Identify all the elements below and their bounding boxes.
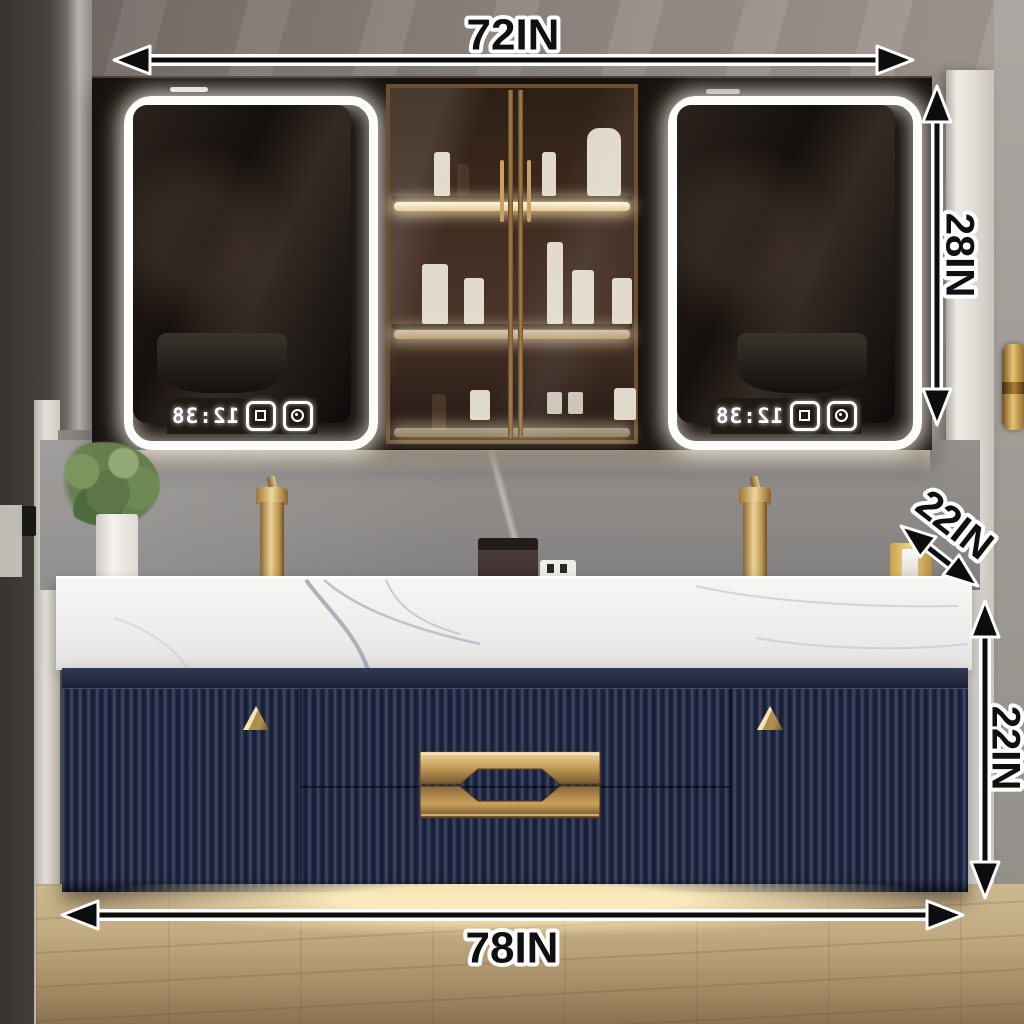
left-mirror-control-panel: 12:38	[167, 398, 317, 434]
under-vanity-glow	[100, 884, 924, 936]
clock-display: 12:38	[715, 404, 783, 428]
defog-icon	[255, 410, 266, 421]
defog-icon	[799, 410, 810, 421]
right-mirror-led-ring	[668, 96, 922, 450]
sconce-ring	[1002, 382, 1024, 394]
left-faucet	[260, 502, 284, 582]
gold-drawer-handle	[418, 750, 602, 820]
tray-item	[547, 564, 554, 573]
marble-veins	[56, 578, 972, 670]
light-button	[827, 401, 857, 431]
glass-reflection	[390, 88, 634, 440]
vanity-cabinet	[62, 668, 968, 892]
vanity-top-rail	[62, 668, 968, 689]
right-mirror-glass	[677, 105, 895, 423]
right-wall	[994, 0, 1024, 1024]
right-door-knob	[757, 706, 783, 730]
background-vase	[0, 505, 22, 577]
mirror-reflection	[737, 333, 867, 393]
mirror-reflection	[157, 333, 287, 393]
left-mirror-glass	[133, 105, 351, 423]
left-mirror-led-ring	[124, 96, 378, 450]
led-reflection	[170, 87, 208, 92]
marble-countertop	[56, 576, 972, 670]
defog-button	[790, 401, 820, 431]
defog-button	[246, 401, 276, 431]
right-faucet	[743, 502, 767, 582]
left-door-knob	[243, 706, 269, 730]
door-seam	[730, 688, 732, 892]
clock-display: 12:38	[171, 404, 239, 428]
led-reflection	[706, 89, 740, 94]
tray-item	[560, 564, 567, 573]
glass-storage-cabinet	[386, 84, 638, 444]
door-seam	[300, 688, 302, 892]
light-button	[283, 401, 313, 431]
gold-wall-sconce	[1002, 344, 1024, 430]
right-mirror-control-panel: 12:38	[711, 398, 861, 434]
vanity-product-image: 12:38 12:38	[0, 0, 1024, 1024]
plant-vase	[96, 514, 138, 578]
